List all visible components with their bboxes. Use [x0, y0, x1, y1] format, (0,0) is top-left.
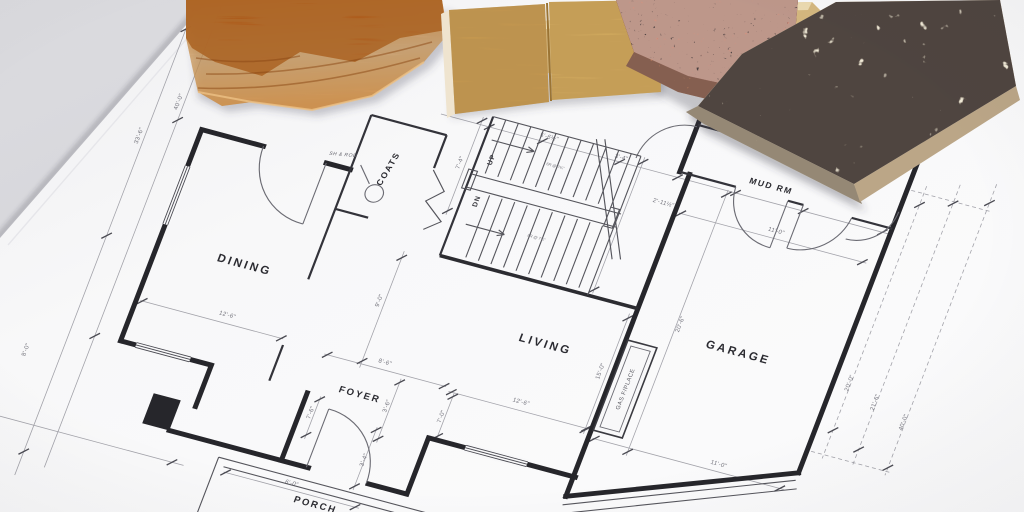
photo-vignette	[0, 0, 1024, 512]
photo-stage: 12'-6"12'-6"15'-0"20'-6"20'-0"21'-6"40'-…	[0, 0, 1024, 512]
blueprint-and-material-samples-photo: 12'-6"12'-6"15'-0"20'-6"20'-0"21'-6"40'-…	[0, 0, 1024, 512]
